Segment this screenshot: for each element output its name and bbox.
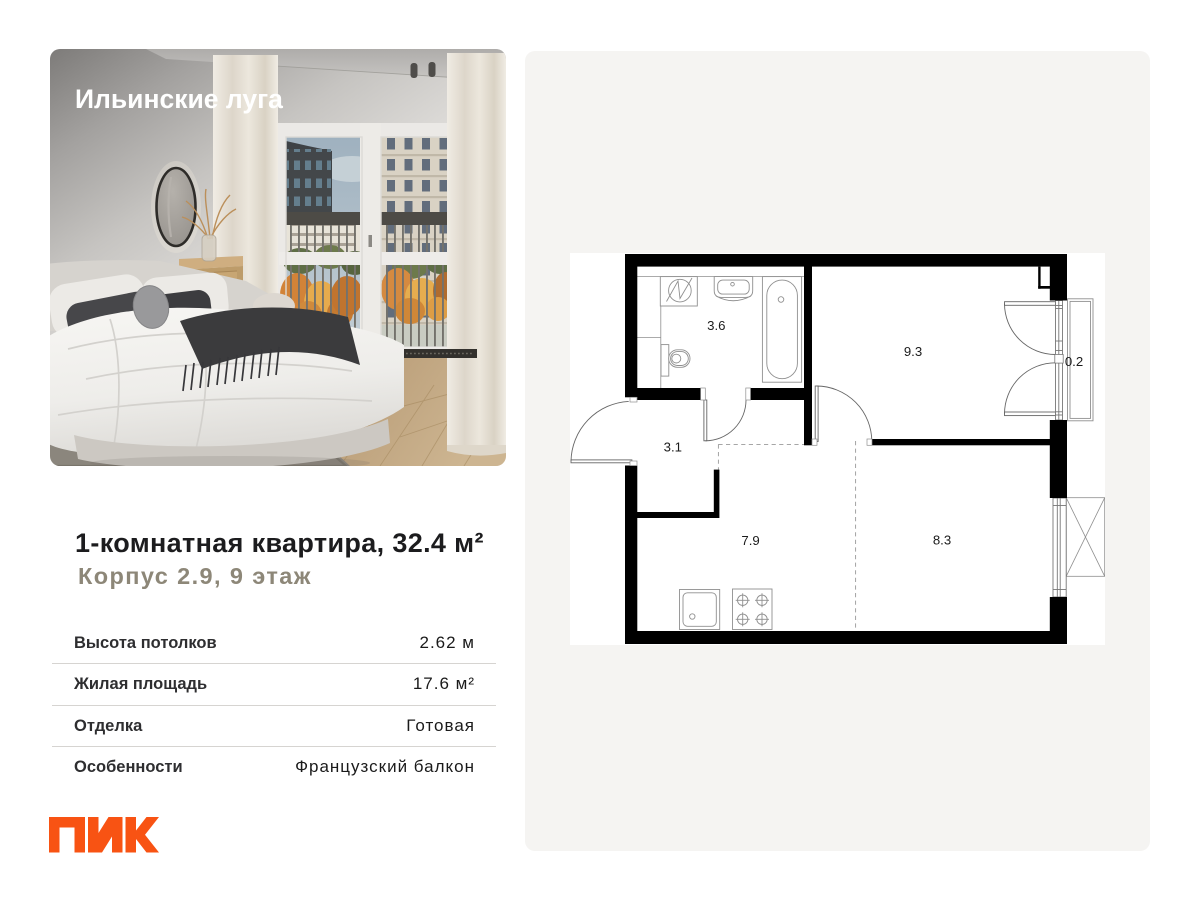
svg-text:3.6: 3.6 xyxy=(707,318,725,333)
svg-text:8.3: 8.3 xyxy=(933,533,951,548)
svg-text:7.9: 7.9 xyxy=(741,533,759,548)
svg-text:0.2: 0.2 xyxy=(1065,354,1083,369)
svg-text:3.1: 3.1 xyxy=(664,440,682,455)
svg-text:9.3: 9.3 xyxy=(904,344,922,359)
